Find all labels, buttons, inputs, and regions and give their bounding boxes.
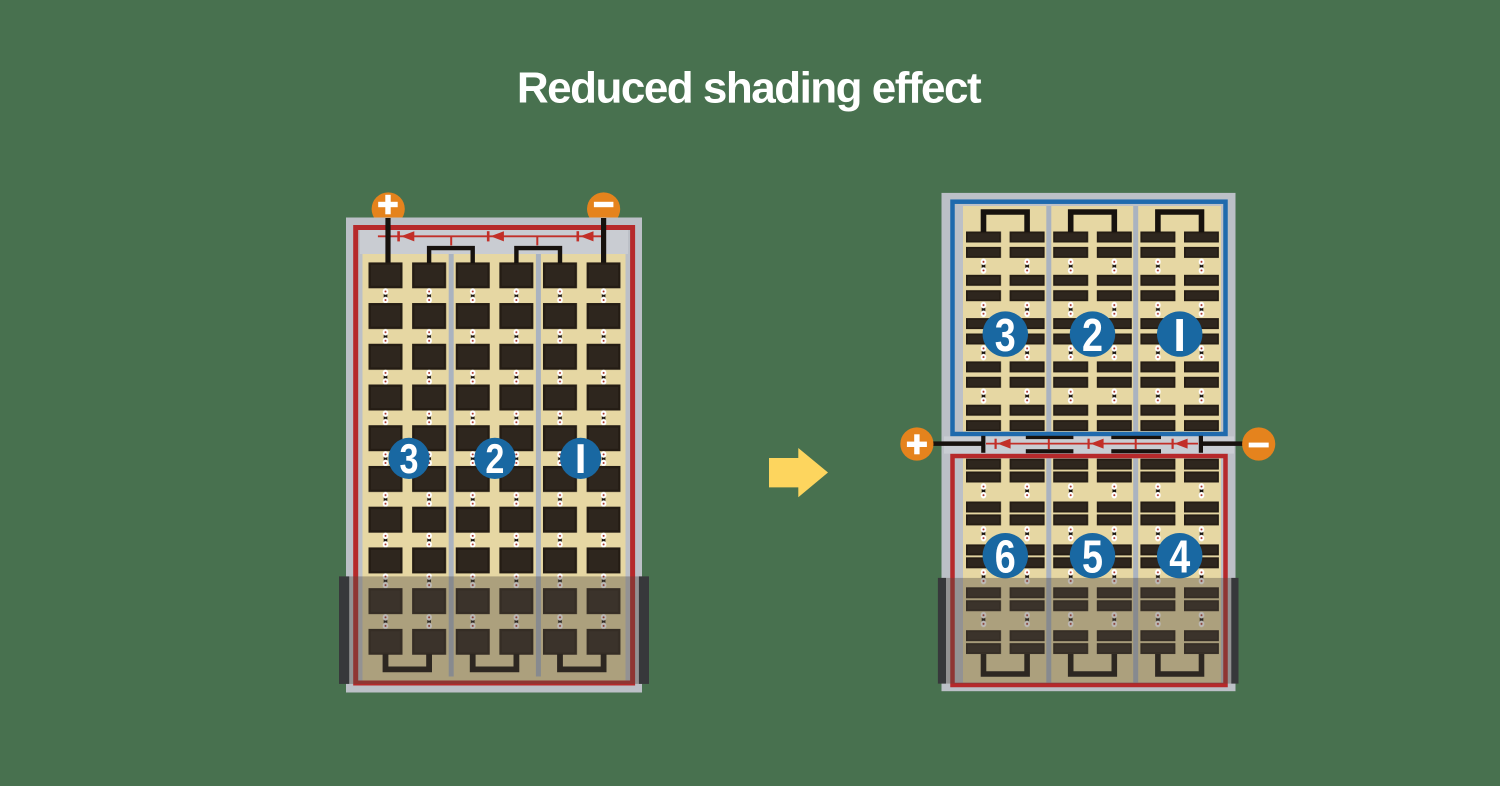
svg-text:5: 5 (1082, 531, 1103, 583)
svg-text:2: 2 (485, 435, 504, 482)
svg-text:2: 2 (1082, 309, 1103, 361)
svg-text:3: 3 (995, 309, 1016, 361)
svg-text:I: I (1173, 309, 1186, 361)
svg-text:4: 4 (1169, 531, 1190, 583)
svg-text:3: 3 (400, 435, 419, 482)
svg-text:I: I (575, 435, 587, 482)
svg-text:6: 6 (995, 531, 1016, 583)
svg-text:Reduced shading effect: Reduced shading effect (517, 64, 982, 113)
